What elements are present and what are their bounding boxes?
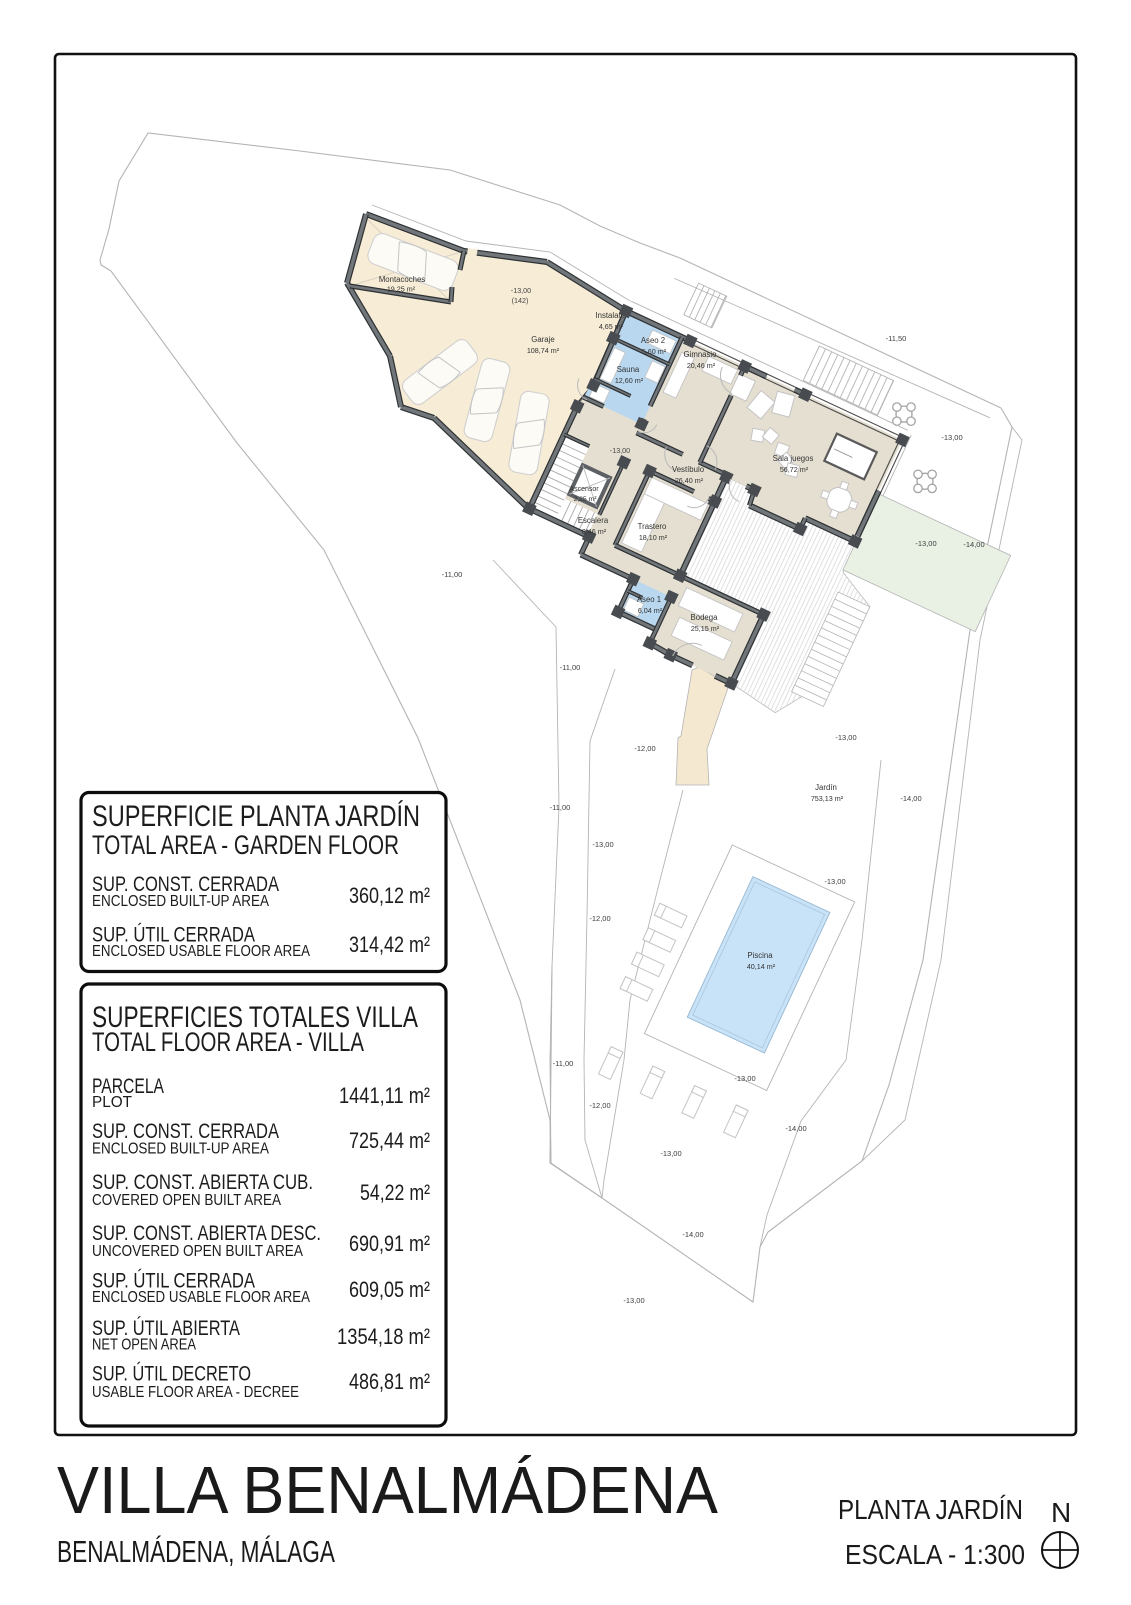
svg-text:8,46 m²: 8,46 m² [582, 527, 607, 536]
svg-text:-13,00: -13,00 [824, 877, 845, 886]
svg-text:26,40 m²: 26,40 m² [675, 476, 704, 485]
svg-text:Bodega: Bodega [691, 613, 719, 622]
svg-text:-14,00: -14,00 [900, 794, 921, 803]
svg-text:-11,00: -11,00 [442, 570, 463, 579]
svg-text:SUP. CONST. CERRADA: SUP. CONST. CERRADA [92, 1119, 280, 1143]
svg-text:Trastero: Trastero [638, 522, 667, 531]
svg-text:-12,00: -12,00 [634, 744, 655, 753]
svg-text:Sala juegos: Sala juegos [773, 454, 814, 463]
svg-text:314,42 m²: 314,42 m² [349, 932, 430, 957]
svg-text:753,13 m²: 753,13 m² [811, 794, 844, 803]
svg-text:Ascensor: Ascensor [569, 486, 599, 493]
svg-text:TOTAL FLOOR AREA - VILLA: TOTAL FLOOR AREA - VILLA [92, 1027, 364, 1057]
svg-text:-13,00: -13,00 [941, 433, 962, 442]
svg-text:TOTAL AREA - GARDEN FLOOR: TOTAL AREA - GARDEN FLOOR [92, 830, 399, 860]
svg-text:Montacoches: Montacoches [379, 275, 425, 284]
svg-text:6,04 m²: 6,04 m² [638, 606, 663, 615]
svg-text:-12,00: -12,00 [589, 1101, 610, 1110]
svg-text:SUP. ÚTIL DECRETO: SUP. ÚTIL DECRETO [92, 1361, 251, 1386]
svg-text:USABLE FLOOR AREA - DECREE: USABLE FLOOR AREA - DECREE [92, 1384, 299, 1401]
svg-text:Gimnasio: Gimnasio [684, 350, 718, 359]
svg-text:-14,00: -14,00 [963, 540, 984, 549]
svg-text:-13,00: -13,00 [511, 286, 531, 295]
svg-text:-13,00: -13,00 [623, 1296, 644, 1305]
svg-text:690,91 m²: 690,91 m² [349, 1231, 430, 1256]
svg-text:Instalac.: Instalac. [595, 311, 624, 320]
svg-text:SUPERFICIE PLANTA JARDÍN: SUPERFICIE PLANTA JARDÍN [92, 800, 420, 833]
svg-text:-14,00: -14,00 [682, 1230, 703, 1239]
svg-text:SUP. CONST. ABIERTA DESC.: SUP. CONST. ABIERTA DESC. [92, 1221, 321, 1245]
svg-text:725,44 m²: 725,44 m² [349, 1128, 430, 1153]
svg-text:4,65 m²: 4,65 m² [599, 322, 624, 331]
svg-text:Piscina: Piscina [747, 951, 773, 960]
svg-text:-13,00: -13,00 [660, 1149, 681, 1158]
svg-text:5,60 m²: 5,60 m² [642, 347, 667, 356]
svg-text:2,25 m²: 2,25 m² [573, 496, 597, 503]
svg-text:-11,00: -11,00 [550, 803, 571, 812]
svg-text:(142): (142) [512, 296, 529, 305]
svg-text:20,46 m²: 20,46 m² [687, 361, 716, 370]
svg-text:BENALMÁDENA, MÁLAGA: BENALMÁDENA, MÁLAGA [57, 1534, 335, 1569]
svg-text:56,72 m²: 56,72 m² [780, 465, 809, 474]
svg-text:25,15 m²: 25,15 m² [691, 624, 720, 633]
svg-text:-14,00: -14,00 [785, 1124, 806, 1133]
svg-text:-12,00: -12,00 [589, 914, 610, 923]
svg-text:-13,00: -13,00 [734, 1074, 755, 1083]
svg-text:486,81 m²: 486,81 m² [349, 1369, 430, 1394]
svg-text:360,12 m²: 360,12 m² [349, 883, 430, 908]
svg-text:ENCLOSED BUILT-UP AREA: ENCLOSED BUILT-UP AREA [92, 893, 269, 910]
svg-text:-13,00: -13,00 [915, 539, 936, 548]
svg-text:ESCALA - 1:300: ESCALA - 1:300 [845, 1539, 1025, 1570]
svg-text:Vestíbulo: Vestíbulo [672, 465, 705, 474]
svg-text:NET OPEN AREA: NET OPEN AREA [92, 1337, 196, 1354]
svg-text:UNCOVERED OPEN BUILT AREA: UNCOVERED OPEN BUILT AREA [92, 1243, 303, 1260]
svg-text:1441,11 m²: 1441,11 m² [339, 1083, 430, 1108]
svg-text:Escalera: Escalera [578, 516, 609, 525]
svg-text:1354,18 m²: 1354,18 m² [337, 1324, 430, 1349]
svg-text:COVERED OPEN BUILT AREA: COVERED OPEN BUILT AREA [92, 1192, 281, 1209]
svg-text:-13,00: -13,00 [610, 446, 630, 455]
svg-text:609,05 m²: 609,05 m² [349, 1277, 430, 1302]
svg-text:Garaje: Garaje [531, 335, 554, 344]
svg-text:ENCLOSED BUILT-UP AREA: ENCLOSED BUILT-UP AREA [92, 1141, 269, 1158]
svg-text:N: N [1051, 1497, 1071, 1528]
svg-text:Sauna: Sauna [617, 365, 640, 374]
svg-text:Aseo 2: Aseo 2 [641, 336, 665, 345]
svg-text:-11,00: -11,00 [553, 1059, 574, 1068]
svg-text:-13,00: -13,00 [835, 733, 856, 742]
svg-text:ENCLOSED USABLE FLOOR AREA: ENCLOSED USABLE FLOOR AREA [92, 1289, 310, 1306]
svg-text:19,25 m²: 19,25 m² [387, 285, 416, 294]
svg-text:18,10 m²: 18,10 m² [639, 533, 668, 542]
svg-text:PLANTA JARDÍN: PLANTA JARDÍN [838, 1494, 1023, 1525]
svg-text:PLOT: PLOT [92, 1094, 132, 1111]
svg-text:108,74 m²: 108,74 m² [527, 346, 560, 355]
svg-text:54,22 m²: 54,22 m² [360, 1180, 430, 1205]
svg-text:12,60 m²: 12,60 m² [615, 376, 644, 385]
svg-text:Jardín: Jardín [815, 783, 837, 792]
svg-text:-13,00: -13,00 [592, 840, 613, 849]
svg-text:VILLA BENALMÁDENA: VILLA BENALMÁDENA [57, 1453, 718, 1528]
svg-text:-11,50: -11,50 [886, 334, 907, 343]
svg-text:40,14 m²: 40,14 m² [747, 962, 776, 971]
svg-text:SUP. CONST. ABIERTA CUB.: SUP. CONST. ABIERTA CUB. [92, 1170, 313, 1194]
svg-text:-11,00: -11,00 [560, 663, 581, 672]
svg-text:Aseo 1: Aseo 1 [637, 595, 661, 604]
svg-text:ENCLOSED USABLE FLOOR AREA: ENCLOSED USABLE FLOOR AREA [92, 943, 310, 960]
